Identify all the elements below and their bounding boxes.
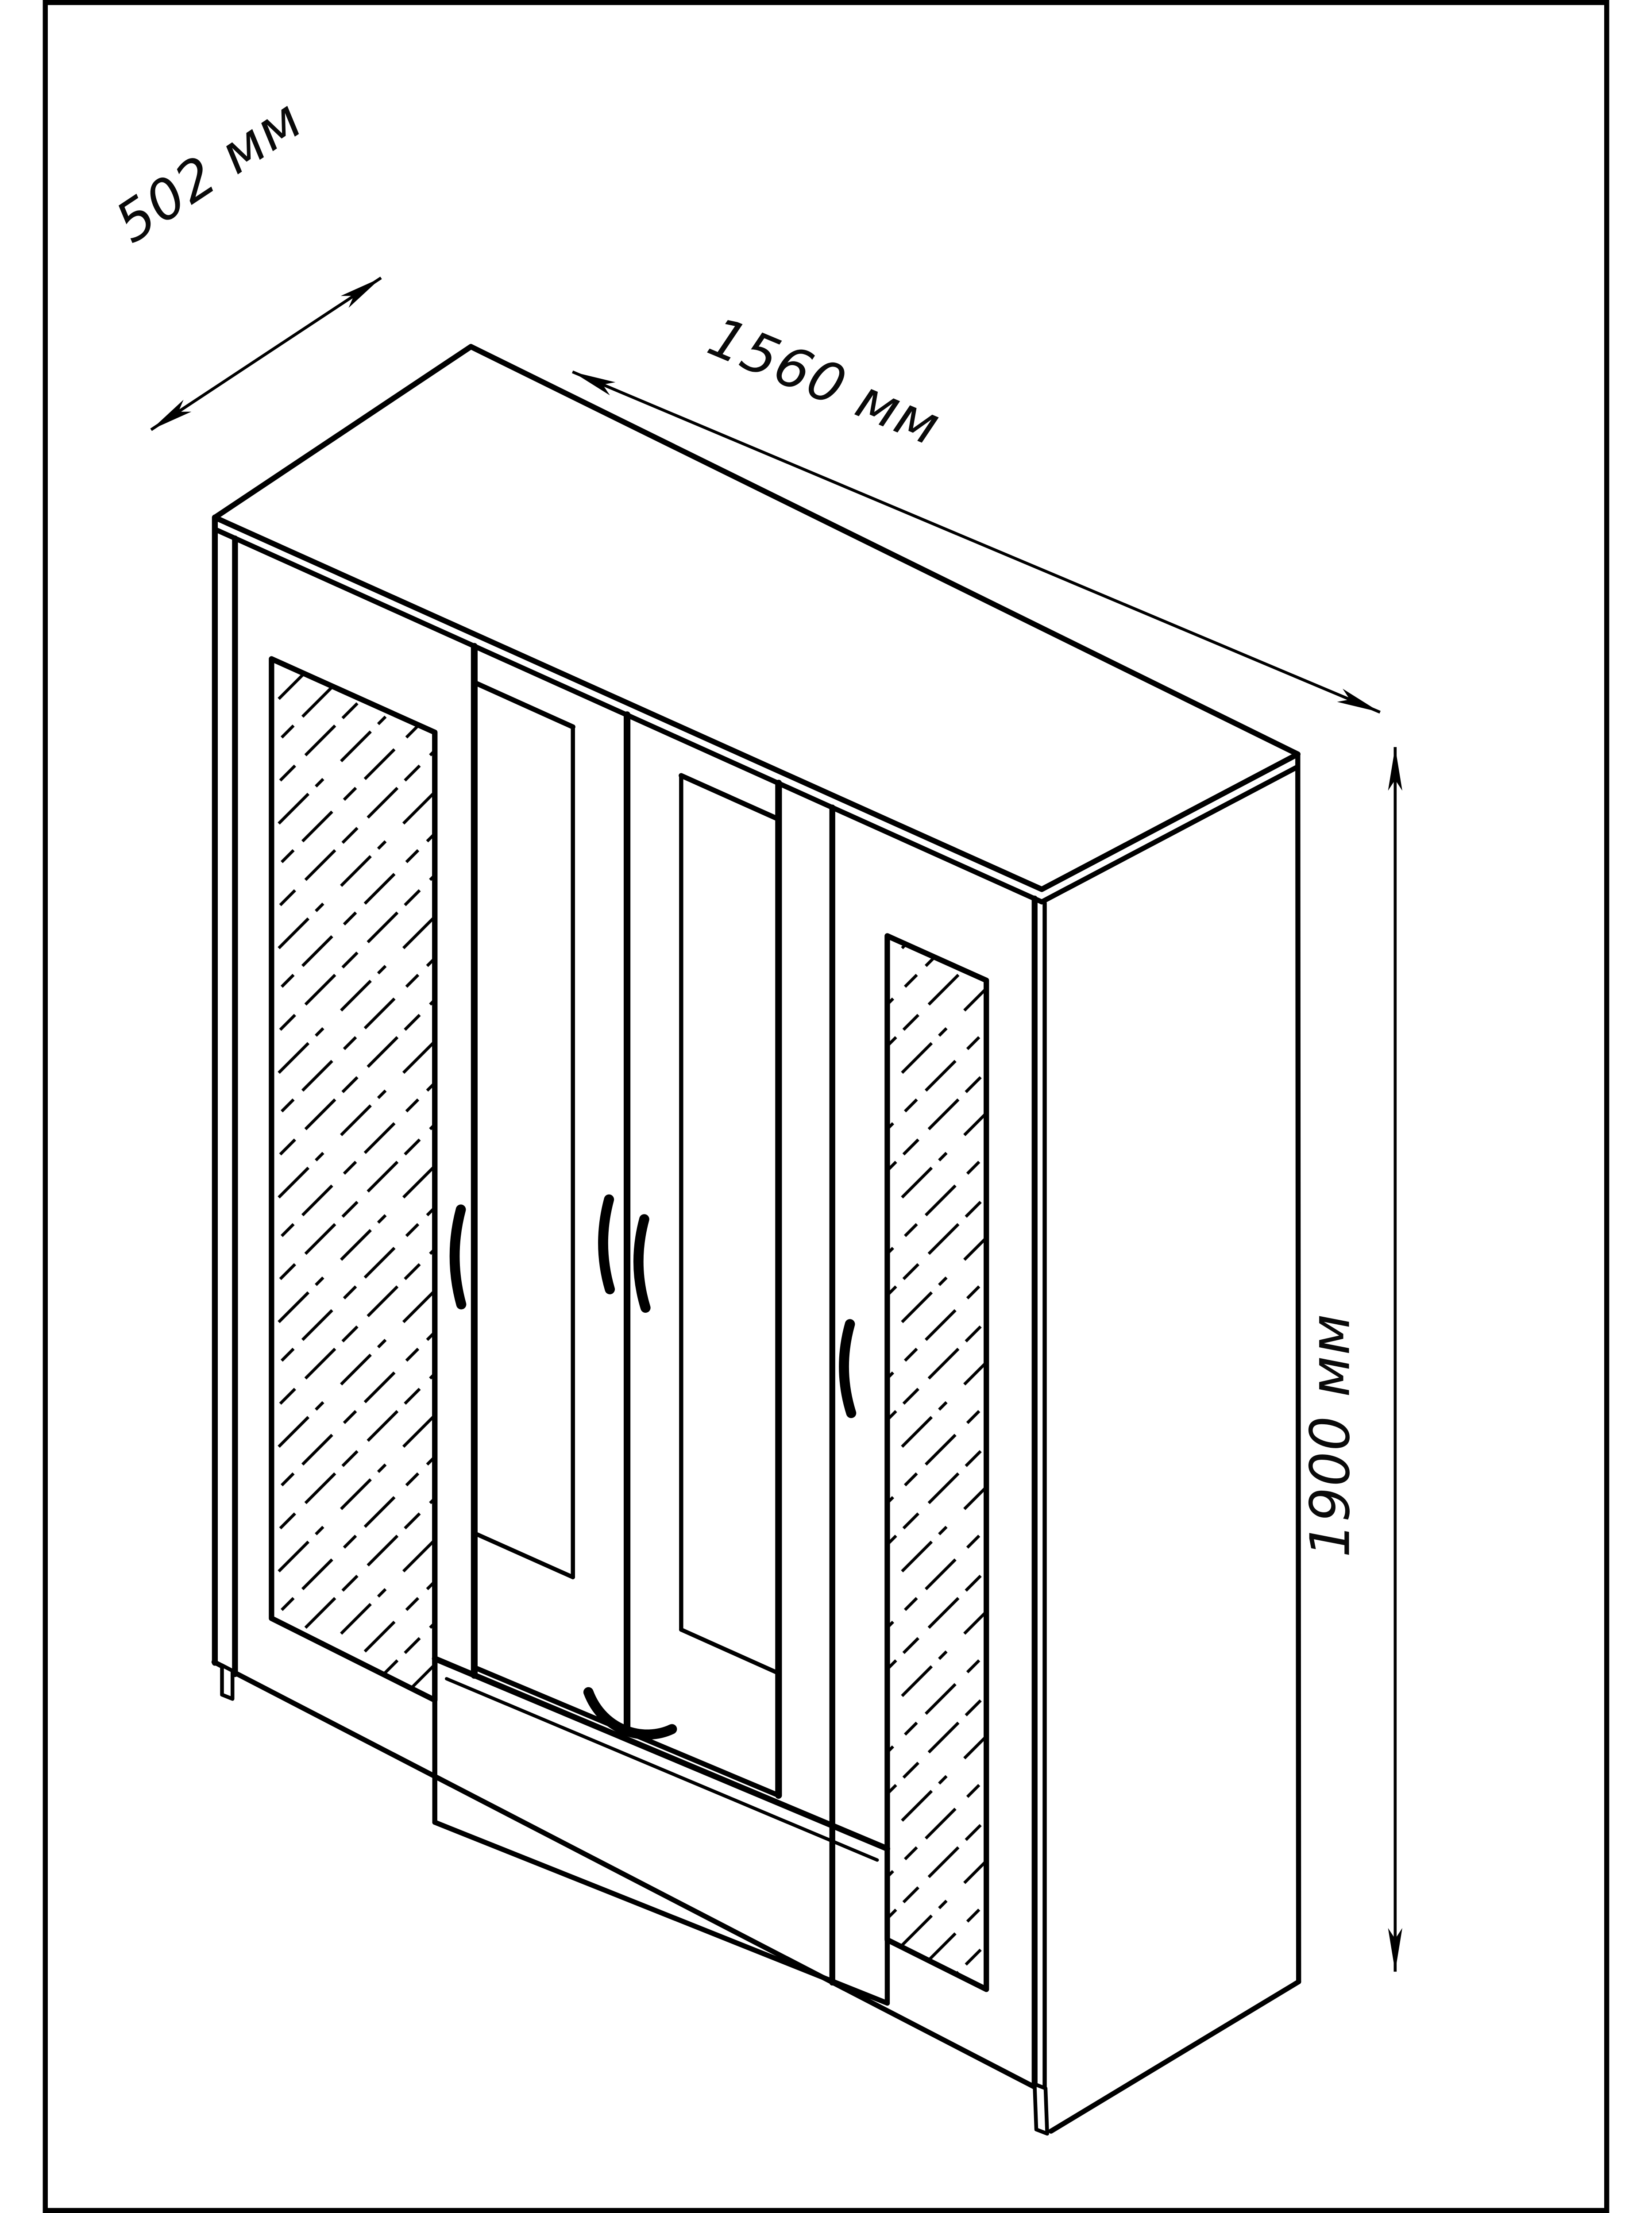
wardrobe-technical-drawing: 502 мм 1560 мм 1900 мм — [0, 0, 1652, 2213]
right-mirror-glass — [887, 936, 986, 1989]
left-mirror-glass — [271, 659, 435, 1700]
right-foot — [1034, 2084, 1047, 2134]
right-side-face — [1042, 754, 1298, 2131]
height-dimension-label: 1900 мм — [1299, 1313, 1362, 1558]
left-foot — [222, 1666, 233, 1699]
side-panel-back-edge — [1298, 754, 1299, 1982]
drawing-page: 502 мм 1560 мм 1900 мм — [0, 0, 1652, 2213]
